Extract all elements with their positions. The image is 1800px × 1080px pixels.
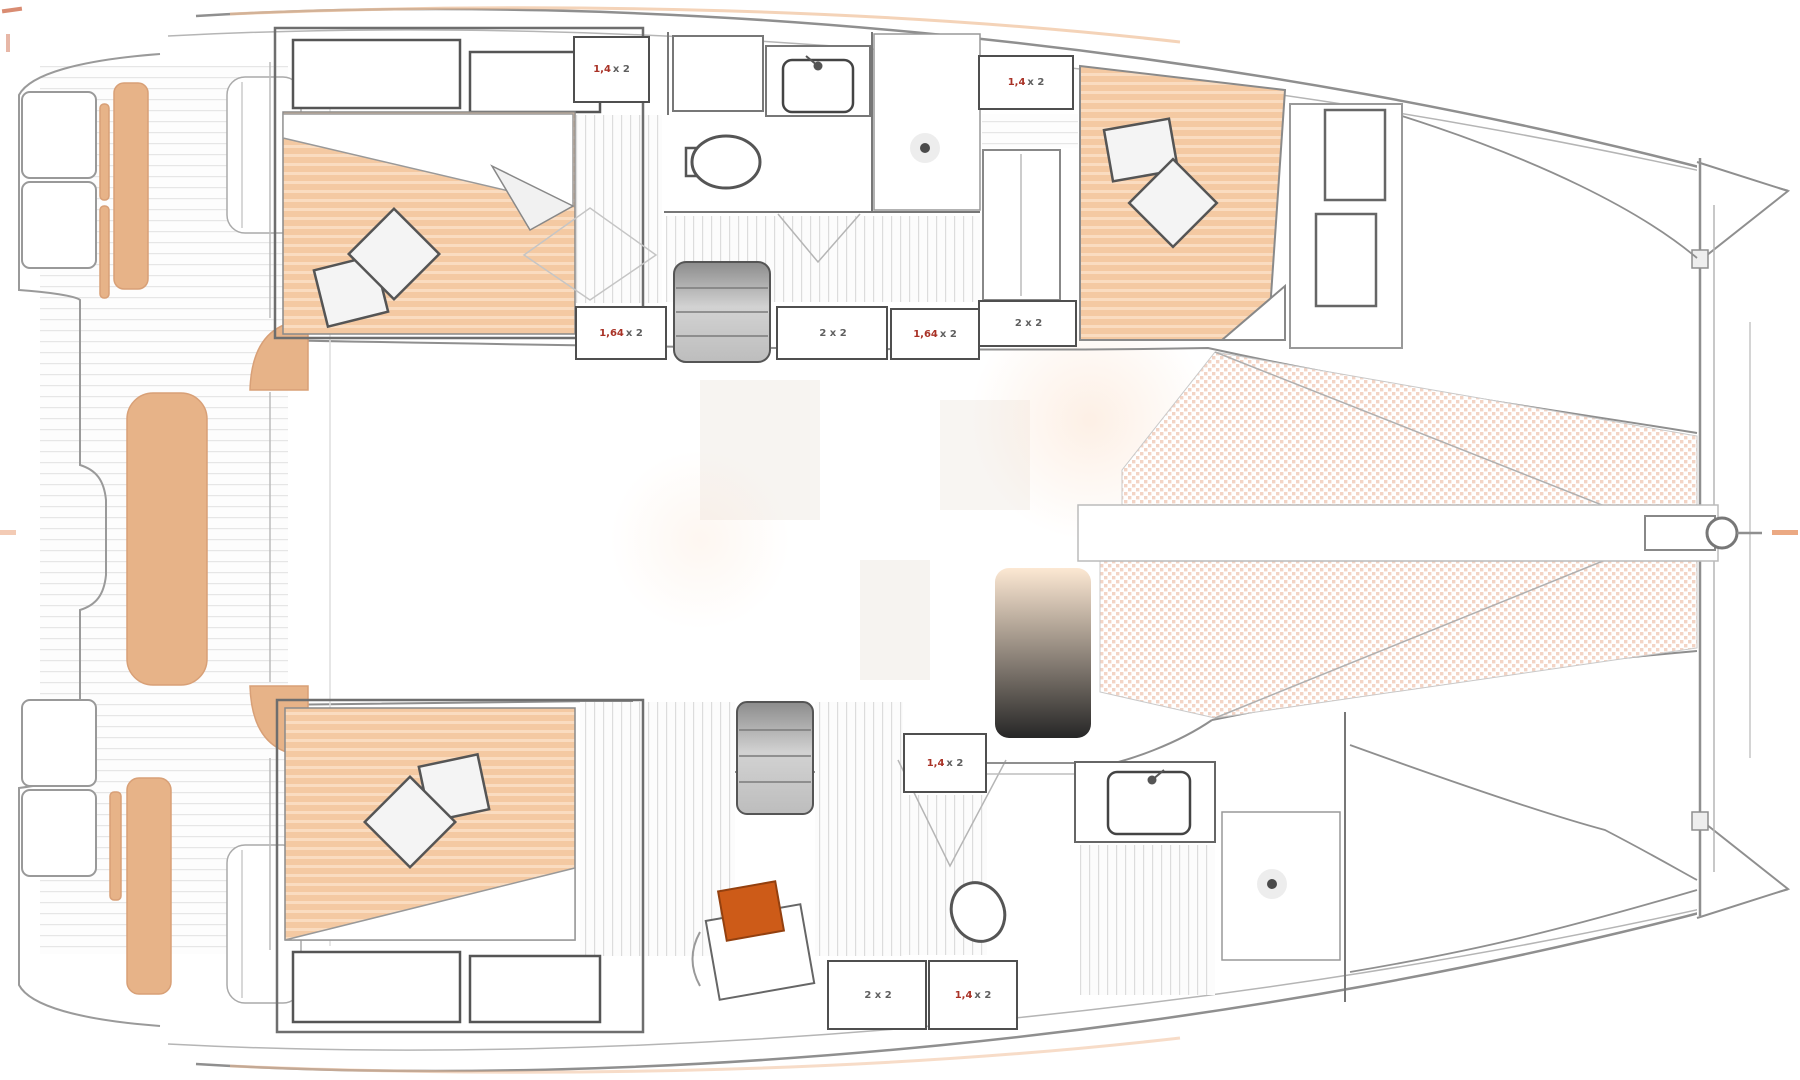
port-side-pad-a <box>100 104 109 200</box>
salon-hatch-glow <box>995 568 1091 738</box>
dimension-main: 2 x 2 <box>1015 318 1042 329</box>
stbd-bow-wedge <box>1697 817 1788 918</box>
office-stool <box>718 881 784 940</box>
toilet-icon <box>692 136 760 188</box>
shower-drain-icon <box>1267 879 1277 889</box>
stbd-bow-lines-top <box>1350 745 1697 880</box>
stbd-corridor-planks-a <box>580 702 735 956</box>
beam-fitting-top <box>1692 250 1708 268</box>
dimension-main: 2 x 2 <box>819 328 846 339</box>
dimension-main: x 2 <box>626 328 643 339</box>
berth-dimension-label: 1,4 x 2 <box>928 960 1018 1030</box>
berth-dimension-label: 1,64 x 2 <box>575 306 667 360</box>
dimension-main: 2 x 2 <box>864 990 891 1001</box>
port-fwd-shelf-planks <box>982 114 1078 148</box>
stbd-corridor-planks-b <box>815 702 903 956</box>
companionway-steps-starboard <box>737 702 813 814</box>
dimension-main: x 2 <box>613 64 630 75</box>
berth-dimension-label: 1,4 x 2 <box>978 55 1074 110</box>
vanity-cabinet <box>673 36 763 111</box>
locker-b <box>470 956 600 1022</box>
berth-dimension-label: 2 x 2 <box>827 960 927 1030</box>
registration-mark-2 <box>6 34 10 52</box>
registration-mark <box>2 7 22 14</box>
bowsprit-end-plate <box>1645 516 1715 550</box>
stbd-head-planks <box>1080 845 1215 995</box>
beam-fitting-bottom <box>1692 812 1708 830</box>
port-side-pad-b <box>100 206 109 298</box>
dimension-red: 1,64 <box>599 328 624 339</box>
trampoline-net-lower <box>1100 560 1697 718</box>
dimension-red: 1,4 <box>927 758 945 769</box>
shower-drain-icon <box>920 143 930 153</box>
dimension-red: 1,4 <box>593 64 611 75</box>
stbd-side-pad <box>110 792 121 900</box>
wardrobe-shelf-b <box>1316 214 1376 306</box>
dimension-main: x 2 <box>946 758 963 769</box>
dimension-main: x 2 <box>1027 77 1044 88</box>
berth-dimension-label: 2 x 2 <box>978 300 1077 347</box>
locker-a <box>293 952 460 1022</box>
shower-room <box>874 34 980 210</box>
port-bow-locker-edge <box>1402 116 1697 258</box>
dimension-red: 1,4 <box>955 990 973 1001</box>
berth-dimension-label: 1,4 x 2 <box>903 733 987 793</box>
port-head <box>664 32 980 212</box>
berth-dimension-label: 1,4 x 2 <box>573 36 650 103</box>
floor-plan-drawing <box>0 0 1800 1080</box>
port-transom-cushion <box>114 83 148 289</box>
bowsprit-beam <box>1078 505 1718 561</box>
catamaran-floor-plan: 1,4 x 2 1,4 x 2 1,64 x 2 2 x 2 1,64 x 2 … <box>0 0 1800 1080</box>
berth-dimension-label: 1,64 x 2 <box>890 308 980 360</box>
stbd-transom-cushion <box>127 778 171 994</box>
aft-bench-cushion <box>127 393 207 685</box>
stbd-bow-lines-bottom <box>1350 890 1697 972</box>
dimension-main: x 2 <box>974 990 991 1001</box>
centerline-tick-left <box>0 530 16 535</box>
berth-dimension-label: 2 x 2 <box>776 306 888 360</box>
dimension-red: 1,4 <box>1008 77 1026 88</box>
wardrobe-shelf-a <box>1325 110 1385 200</box>
dimension-red: 1,64 <box>913 329 938 340</box>
stbd-sheer-accent <box>230 1038 1180 1072</box>
port-bow-wedge <box>1697 162 1788 263</box>
locker-a <box>293 40 460 108</box>
bowsprit-fitting <box>1707 518 1737 548</box>
dimension-main: x 2 <box>940 329 957 340</box>
centerline-tick-right <box>1772 530 1798 535</box>
